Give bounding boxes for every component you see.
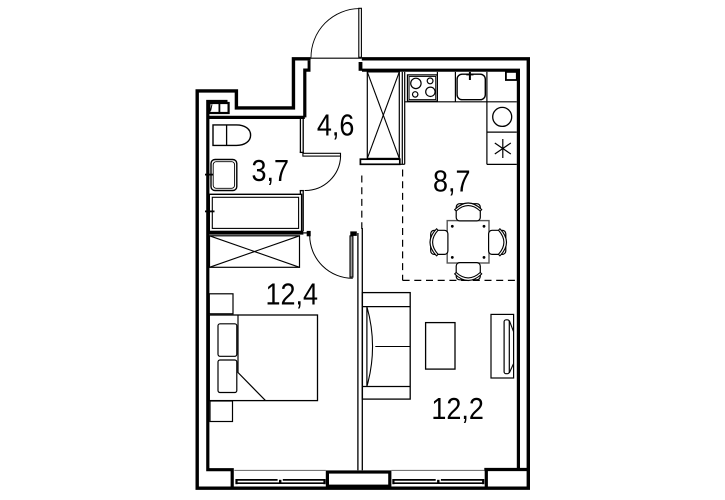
svg-text:12,2: 12,2 [431, 392, 483, 426]
svg-text:8,7: 8,7 [433, 165, 470, 199]
svg-text:4,6: 4,6 [317, 109, 354, 143]
svg-text:3,7: 3,7 [251, 155, 288, 189]
svg-text:12,4: 12,4 [265, 278, 317, 312]
